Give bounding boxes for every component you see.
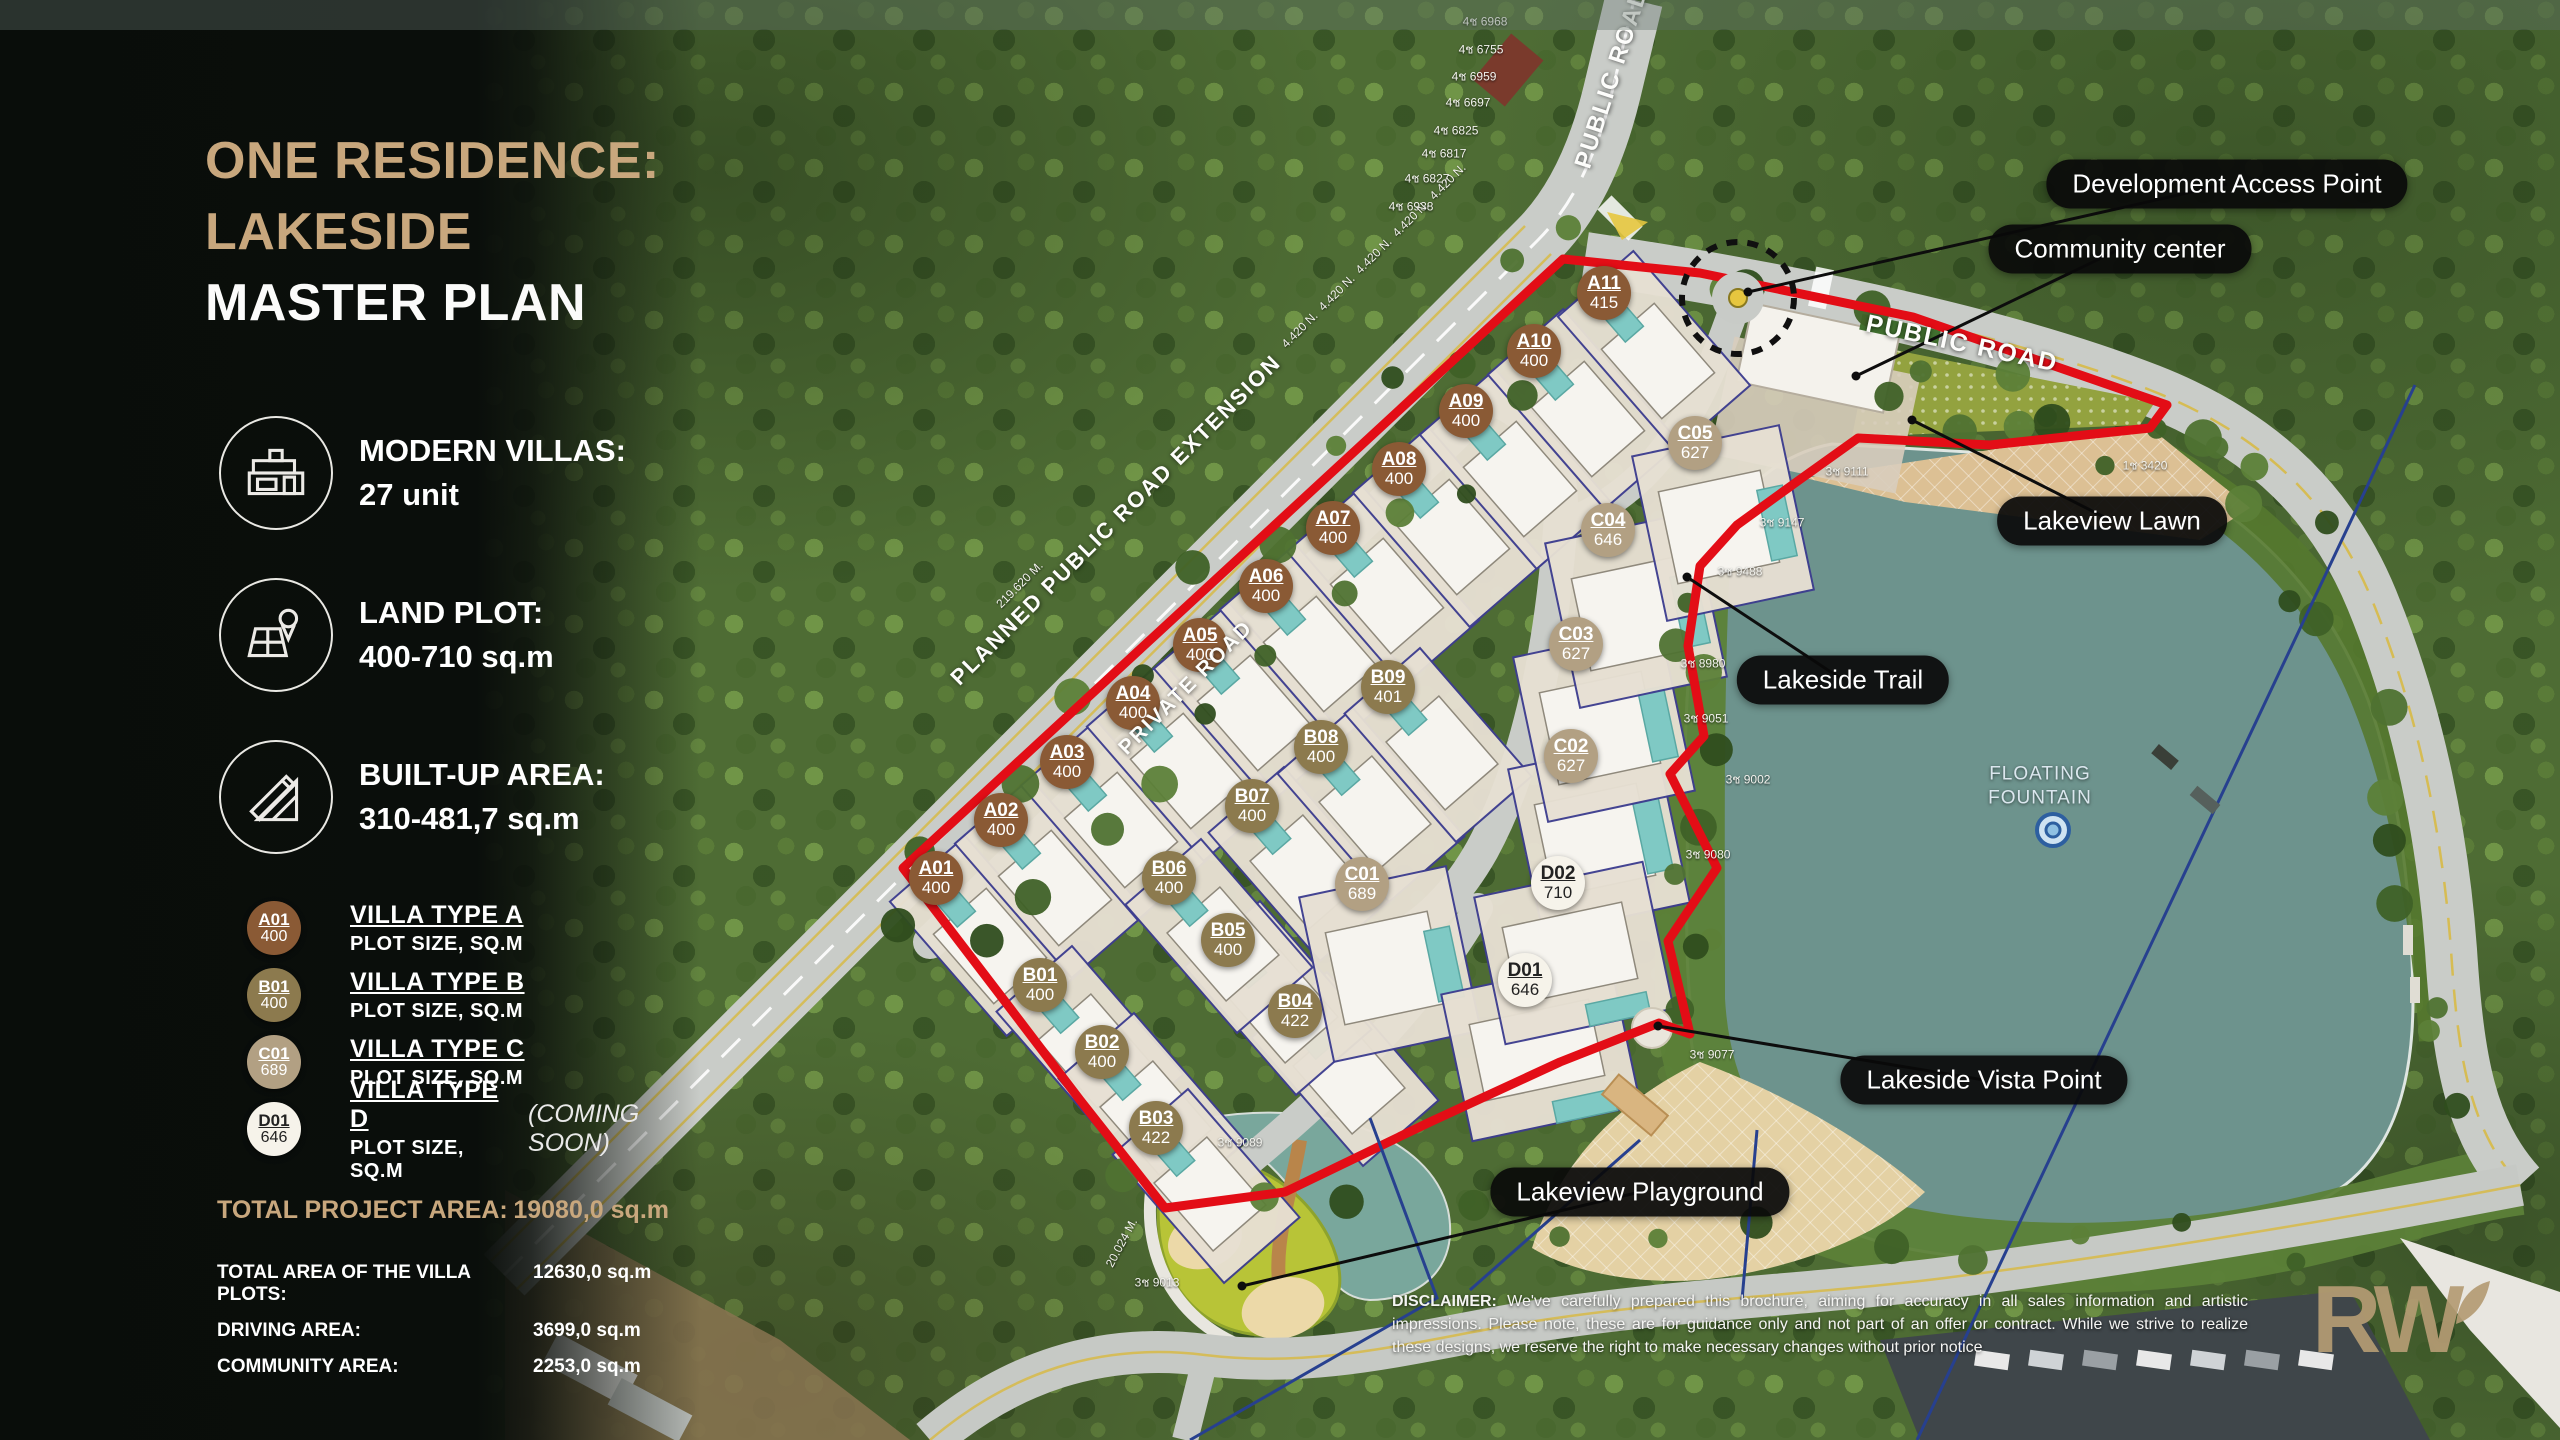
plot-id: C04	[1591, 511, 1626, 531]
plot-size: 646	[1511, 981, 1539, 999]
callout-lakeside-trail: Lakeside Trail	[1737, 656, 1949, 705]
totals-label: DRIVING AREA:	[217, 1320, 533, 1342]
plot-badge-a06: A06400	[1239, 559, 1293, 613]
legend-row-a: A01400VILLA TYPE APLOT SIZE, SQ.M	[247, 901, 700, 955]
plot-size: 400	[922, 879, 950, 897]
plot-badge-b07: B07400	[1225, 779, 1279, 833]
plot-id: A09	[1449, 392, 1484, 412]
plot-id: A04	[1116, 684, 1151, 704]
survey-mark-16: 4ช 6817	[1422, 147, 1467, 160]
area-totals-list: TOTAL AREA OF THE VILLA PLOTS:12630,0 sq…	[217, 1262, 669, 1392]
survey-mark-10: 1ช 3420	[2123, 459, 2168, 472]
feature-label: LAND PLOT:	[359, 594, 554, 632]
legend-title: VILLA TYPE D	[350, 1076, 500, 1134]
total-project-area-row: TOTAL PROJECT AREA: 19080,0 sq.m	[217, 1196, 669, 1225]
plot-badge-a09: A09400	[1439, 384, 1493, 438]
feature-text: MODERN VILLAS:27 unit	[359, 432, 626, 514]
totals-row-2: COMMUNITY AREA:2253,0 sq.m	[217, 1356, 669, 1378]
master-plan-slide: FLOATING FOUNTAIN DISCLAIMER: We've care…	[0, 0, 2560, 1440]
survey-mark-12: 4ช 6755	[1459, 43, 1504, 56]
rw-logo: RW	[2312, 1272, 2492, 1368]
callout-development-access-point: Development Access Point	[2046, 160, 2407, 209]
legend-badge-c: C01689	[247, 1035, 301, 1089]
feature-row-2: BUILT-UP AREA:310-481,7 sq.m	[219, 742, 679, 852]
totals-label: COMMUNITY AREA:	[217, 1356, 533, 1378]
plot-id: A10	[1517, 332, 1552, 352]
survey-mark-1: 3ช 9147	[1760, 516, 1805, 529]
plot-id: C02	[1554, 737, 1589, 757]
survey-mark-4: 3ช 9051	[1684, 712, 1729, 725]
survey-mark-9: 3ช 9089	[1218, 1136, 1263, 1149]
plot-size: 422	[1281, 1012, 1309, 1030]
plot-size: 400	[1520, 352, 1548, 370]
plot-id: B07	[1235, 787, 1270, 807]
title-line-2: LAKESIDE	[205, 197, 660, 268]
plot-size: 627	[1557, 757, 1585, 775]
disclaimer-text: DISCLAIMER: We've carefully prepared thi…	[1392, 1290, 2248, 1359]
plot-size: 400	[1026, 986, 1054, 1004]
plot-size: 400	[1452, 412, 1480, 430]
plot-badge-a03: A03400	[1040, 735, 1094, 789]
plot-id: A07	[1316, 509, 1351, 529]
top-bar	[0, 0, 2560, 30]
feature-label: MODERN VILLAS:	[359, 432, 626, 470]
legend-subtitle: PLOT SIZE, SQ.M	[350, 1137, 500, 1183]
plot-badge-a08: A08400	[1372, 442, 1426, 496]
plot-size: 400	[1238, 807, 1266, 825]
feature-list: MODERN VILLAS:27 unitLAND PLOT:400-710 s…	[219, 418, 679, 904]
plot-badge-d02: D02710	[1531, 856, 1585, 910]
plot-id: A08	[1382, 450, 1417, 470]
plot-id: B06	[1152, 859, 1187, 879]
totals-value: 3699,0 sq.m	[533, 1320, 641, 1342]
survey-mark-5: 3ช 9002	[1726, 773, 1771, 786]
feature-value: 400-710 sq.m	[359, 638, 554, 676]
survey-mark-0: 3ช 9111	[1825, 465, 1868, 478]
villa-icon	[219, 416, 333, 530]
survey-mark-25: 20.024 M.	[1104, 1216, 1141, 1269]
feature-text: BUILT-UP AREA:310-481,7 sq.m	[359, 756, 605, 838]
feature-row-0: MODERN VILLAS:27 unit	[219, 418, 679, 528]
plot-badge-b02: B02400	[1075, 1025, 1129, 1079]
plot-id: B03	[1139, 1109, 1174, 1129]
survey-mark-14: 4ช 6697	[1446, 96, 1491, 109]
plot-size: 689	[1348, 885, 1376, 903]
survey-mark-8: 3ช 9013	[1135, 1276, 1180, 1289]
totals-label: TOTAL AREA OF THE VILLA PLOTS:	[217, 1262, 533, 1306]
plot-id: B05	[1211, 921, 1246, 941]
feature-value: 27 unit	[359, 476, 626, 514]
plot-id: B02	[1085, 1033, 1120, 1053]
plot-id: C01	[1345, 865, 1380, 885]
survey-mark-3: 3ช 8980	[1681, 657, 1726, 670]
plot-badge-b01: B01400	[1013, 958, 1067, 1012]
survey-mark-19: 4.420 N.	[1279, 309, 1320, 350]
legend-title: VILLA TYPE A	[350, 901, 524, 930]
plot-badge-c02: C02627	[1544, 729, 1598, 783]
plot-id: A01	[919, 859, 954, 879]
survey-mark-7: 3ช 9077	[1690, 1048, 1735, 1061]
plot-badge-d01: D01646	[1498, 953, 1552, 1007]
callout-lakeside-vista-point: Lakeside Vista Point	[1840, 1056, 2127, 1105]
plot-size: 646	[1594, 531, 1622, 549]
total-project-area-label: TOTAL PROJECT AREA:	[217, 1196, 508, 1225]
plot-badge-a07: A07400	[1306, 501, 1360, 555]
info-sidebar: ONE RESIDENCE: LAKESIDE MASTER PLAN MODE…	[0, 0, 700, 1440]
totals-value: 2253,0 sq.m	[533, 1356, 641, 1378]
plot-badge-a02: A02400	[974, 793, 1028, 847]
floating-fountain-label: FLOATING FOUNTAIN	[1988, 762, 2092, 810]
totals-row-0: TOTAL AREA OF THE VILLA PLOTS:12630,0 sq…	[217, 1262, 669, 1306]
plot-size: 400	[1214, 941, 1242, 959]
survey-mark-6: 3ช 9080	[1686, 848, 1731, 861]
built-up-icon	[219, 740, 333, 854]
feature-label: BUILT-UP AREA:	[359, 756, 605, 794]
plot-badge-b03: B03422	[1129, 1101, 1183, 1155]
title-line-3: MASTER PLAN	[205, 268, 660, 339]
plot-badge-c03: C03627	[1549, 617, 1603, 671]
totals-value: 12630,0 sq.m	[533, 1262, 651, 1306]
plot-badge-c04: C04646	[1581, 503, 1635, 557]
plot-size: 400	[1307, 748, 1335, 766]
legend-text: VILLA TYPE DPLOT SIZE, SQ.M	[350, 1076, 500, 1183]
legend-row-b: B01400VILLA TYPE BPLOT SIZE, SQ.M	[247, 968, 700, 1022]
survey-mark-20: 4.420 N.	[1316, 272, 1357, 313]
road-label-1: PUBLIC ROAD	[1863, 309, 2060, 378]
survey-mark-2: 3ช 9488	[1718, 565, 1763, 578]
legend-badge-d: D01646	[247, 1102, 301, 1156]
title-line-1: ONE RESIDENCE:	[205, 126, 660, 197]
legend-title: VILLA TYPE B	[350, 968, 525, 997]
legend-title: VILLA TYPE C	[350, 1035, 525, 1064]
plot-size: 400	[1088, 1053, 1116, 1071]
plot-size: 710	[1544, 884, 1572, 902]
plot-id: B09	[1371, 668, 1406, 688]
legend-row-d: D01646VILLA TYPE DPLOT SIZE, SQ.M(COMING…	[247, 1102, 700, 1156]
page-title: ONE RESIDENCE: LAKESIDE MASTER PLAN	[205, 126, 660, 339]
plot-size: 422	[1142, 1129, 1170, 1147]
plot-size: 627	[1562, 645, 1590, 663]
plot-id: B04	[1278, 992, 1313, 1012]
totals-row-1: DRIVING AREA:3699,0 sq.m	[217, 1320, 669, 1342]
plot-id: B08	[1304, 728, 1339, 748]
legend-subtitle: PLOT SIZE, SQ.M	[350, 933, 524, 956]
plot-id: A02	[984, 801, 1019, 821]
legend-text: VILLA TYPE APLOT SIZE, SQ.M	[350, 901, 524, 956]
callout-lakeview-playground: Lakeview Playground	[1490, 1168, 1789, 1217]
plot-size: 400	[1319, 529, 1347, 547]
plot-id: B01	[1023, 966, 1058, 986]
plot-badge-a11: A11415	[1577, 266, 1631, 320]
plot-size: 400	[1053, 763, 1081, 781]
plot-size: 400	[1252, 587, 1280, 605]
survey-mark-13: 4ช 6959	[1452, 70, 1497, 83]
plot-badge-b05: B05400	[1201, 913, 1255, 967]
callout-lakeview-lawn: Lakeview Lawn	[1997, 497, 2227, 546]
plot-size: 400	[1385, 470, 1413, 488]
legend-subtitle: PLOT SIZE, SQ.M	[350, 1000, 525, 1023]
plot-badge-c05: C05627	[1668, 416, 1722, 470]
legend-badge-b: B01400	[247, 968, 301, 1022]
plot-badge-b09: B09401	[1361, 660, 1415, 714]
plot-size: 627	[1681, 444, 1709, 462]
plot-badge-b06: B06400	[1142, 851, 1196, 905]
plot-id: A06	[1249, 567, 1284, 587]
feature-row-1: LAND PLOT:400-710 sq.m	[219, 580, 679, 690]
plot-badge-b08: B08400	[1294, 720, 1348, 774]
plot-id: D01	[1508, 961, 1543, 981]
callout-community-center: Community center	[1989, 225, 2252, 274]
plot-size: 415	[1590, 294, 1618, 312]
legend-note: (COMING SOON)	[528, 1100, 700, 1158]
leaf-icon	[2452, 1278, 2492, 1326]
plot-id: C05	[1678, 424, 1713, 444]
legend-badge-a: A01400	[247, 901, 301, 955]
plot-badge-a01: A01400	[909, 851, 963, 905]
feature-value: 310-481,7 sq.m	[359, 800, 605, 838]
plot-badge-c01: C01689	[1335, 857, 1389, 911]
plot-id: A03	[1050, 743, 1085, 763]
villa-type-legend: A01400VILLA TYPE APLOT SIZE, SQ.MB01400V…	[247, 901, 700, 1169]
plot-badge-b04: B04422	[1268, 984, 1322, 1038]
land-plot-icon	[219, 578, 333, 692]
plot-id: A11	[1587, 274, 1621, 294]
plot-size: 400	[987, 821, 1015, 839]
plot-size: 400	[1155, 879, 1183, 897]
total-project-area-value: 19080,0 sq.m	[513, 1196, 669, 1225]
plot-id: D02	[1541, 864, 1576, 884]
legend-text: VILLA TYPE BPLOT SIZE, SQ.M	[350, 968, 525, 1023]
feature-text: LAND PLOT:400-710 sq.m	[359, 594, 554, 676]
survey-mark-21: 4.420 N.	[1353, 235, 1394, 276]
survey-mark-15: 4ช 6825	[1434, 124, 1479, 137]
plot-size: 401	[1374, 688, 1402, 706]
plot-badge-a10: A10400	[1507, 324, 1561, 378]
plot-id: C03	[1559, 625, 1594, 645]
